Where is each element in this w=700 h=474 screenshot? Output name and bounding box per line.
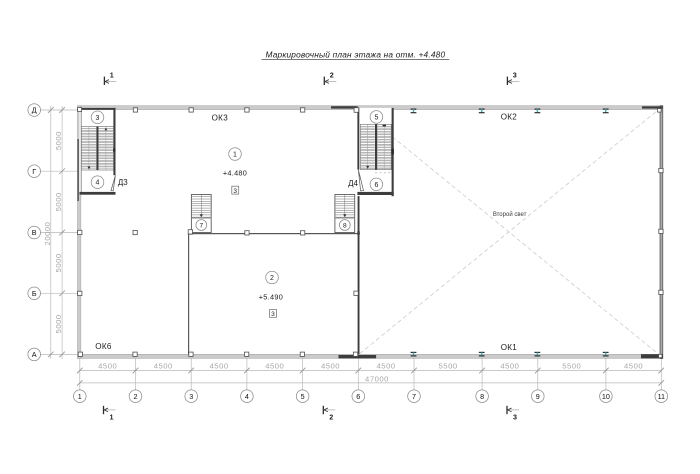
svg-text:47000: 47000 bbox=[365, 374, 389, 383]
svg-text:5500: 5500 bbox=[439, 362, 458, 371]
svg-text:6: 6 bbox=[374, 182, 378, 189]
svg-text:11: 11 bbox=[658, 392, 665, 401]
svg-text:Б: Б bbox=[32, 289, 37, 298]
svg-text:5500: 5500 bbox=[562, 362, 581, 371]
svg-text:ОК2: ОК2 bbox=[501, 113, 518, 122]
svg-text:+4.480: +4.480 bbox=[223, 168, 247, 177]
svg-text:7: 7 bbox=[412, 392, 416, 401]
svg-text:Маркировочный план этажа на от: Маркировочный план этажа на отм. +4.480 bbox=[266, 50, 446, 60]
svg-text:Д: Д bbox=[32, 106, 37, 115]
svg-text:1: 1 bbox=[233, 152, 237, 159]
svg-text:5: 5 bbox=[301, 392, 305, 401]
svg-text:Г: Г bbox=[32, 167, 36, 176]
svg-text:ОК3: ОК3 bbox=[212, 113, 229, 122]
svg-text:2: 2 bbox=[270, 275, 274, 282]
svg-text:4: 4 bbox=[96, 180, 100, 187]
svg-text:4500: 4500 bbox=[265, 362, 284, 371]
svg-text:1: 1 bbox=[110, 70, 114, 79]
svg-text:3: 3 bbox=[271, 311, 275, 318]
svg-text:4500: 4500 bbox=[500, 362, 519, 371]
svg-text:2: 2 bbox=[329, 413, 333, 422]
svg-text:8: 8 bbox=[480, 392, 484, 401]
svg-text:3: 3 bbox=[233, 188, 237, 195]
svg-text:4500: 4500 bbox=[210, 362, 229, 371]
svg-text:3: 3 bbox=[513, 413, 517, 422]
svg-text:3: 3 bbox=[513, 70, 517, 79]
svg-text:ОК6: ОК6 bbox=[95, 342, 112, 351]
svg-text:9: 9 bbox=[536, 392, 540, 401]
svg-text:5000: 5000 bbox=[54, 192, 63, 211]
svg-text:4500: 4500 bbox=[321, 362, 340, 371]
svg-text:В: В bbox=[32, 228, 37, 237]
svg-text:2: 2 bbox=[134, 392, 138, 401]
svg-text:4500: 4500 bbox=[154, 362, 173, 371]
svg-text:8: 8 bbox=[343, 222, 347, 229]
svg-text:7: 7 bbox=[199, 222, 203, 229]
svg-text:6: 6 bbox=[356, 392, 360, 401]
svg-text:3: 3 bbox=[96, 115, 100, 122]
svg-text:А: А bbox=[32, 350, 37, 359]
svg-text:4500: 4500 bbox=[624, 362, 643, 371]
svg-text:3: 3 bbox=[189, 392, 193, 401]
svg-text:5: 5 bbox=[374, 114, 378, 121]
svg-text:+5.490: +5.490 bbox=[259, 293, 283, 302]
svg-text:ОК1: ОК1 bbox=[501, 343, 518, 352]
svg-text:5000: 5000 bbox=[54, 131, 63, 150]
svg-text:Второй свет: Второй свет bbox=[493, 211, 527, 218]
svg-text:5000: 5000 bbox=[54, 314, 63, 333]
svg-text:20000: 20000 bbox=[43, 222, 52, 246]
svg-text:4: 4 bbox=[245, 392, 249, 401]
svg-text:4500: 4500 bbox=[98, 362, 117, 371]
svg-text:2: 2 bbox=[330, 70, 334, 79]
svg-text:4500: 4500 bbox=[377, 362, 396, 371]
svg-text:1: 1 bbox=[110, 413, 114, 422]
svg-text:5000: 5000 bbox=[54, 253, 63, 272]
svg-text:Д4: Д4 bbox=[348, 179, 358, 188]
svg-text:10: 10 bbox=[602, 392, 610, 401]
svg-text:Д3: Д3 bbox=[118, 178, 128, 187]
svg-text:1: 1 bbox=[78, 392, 82, 401]
